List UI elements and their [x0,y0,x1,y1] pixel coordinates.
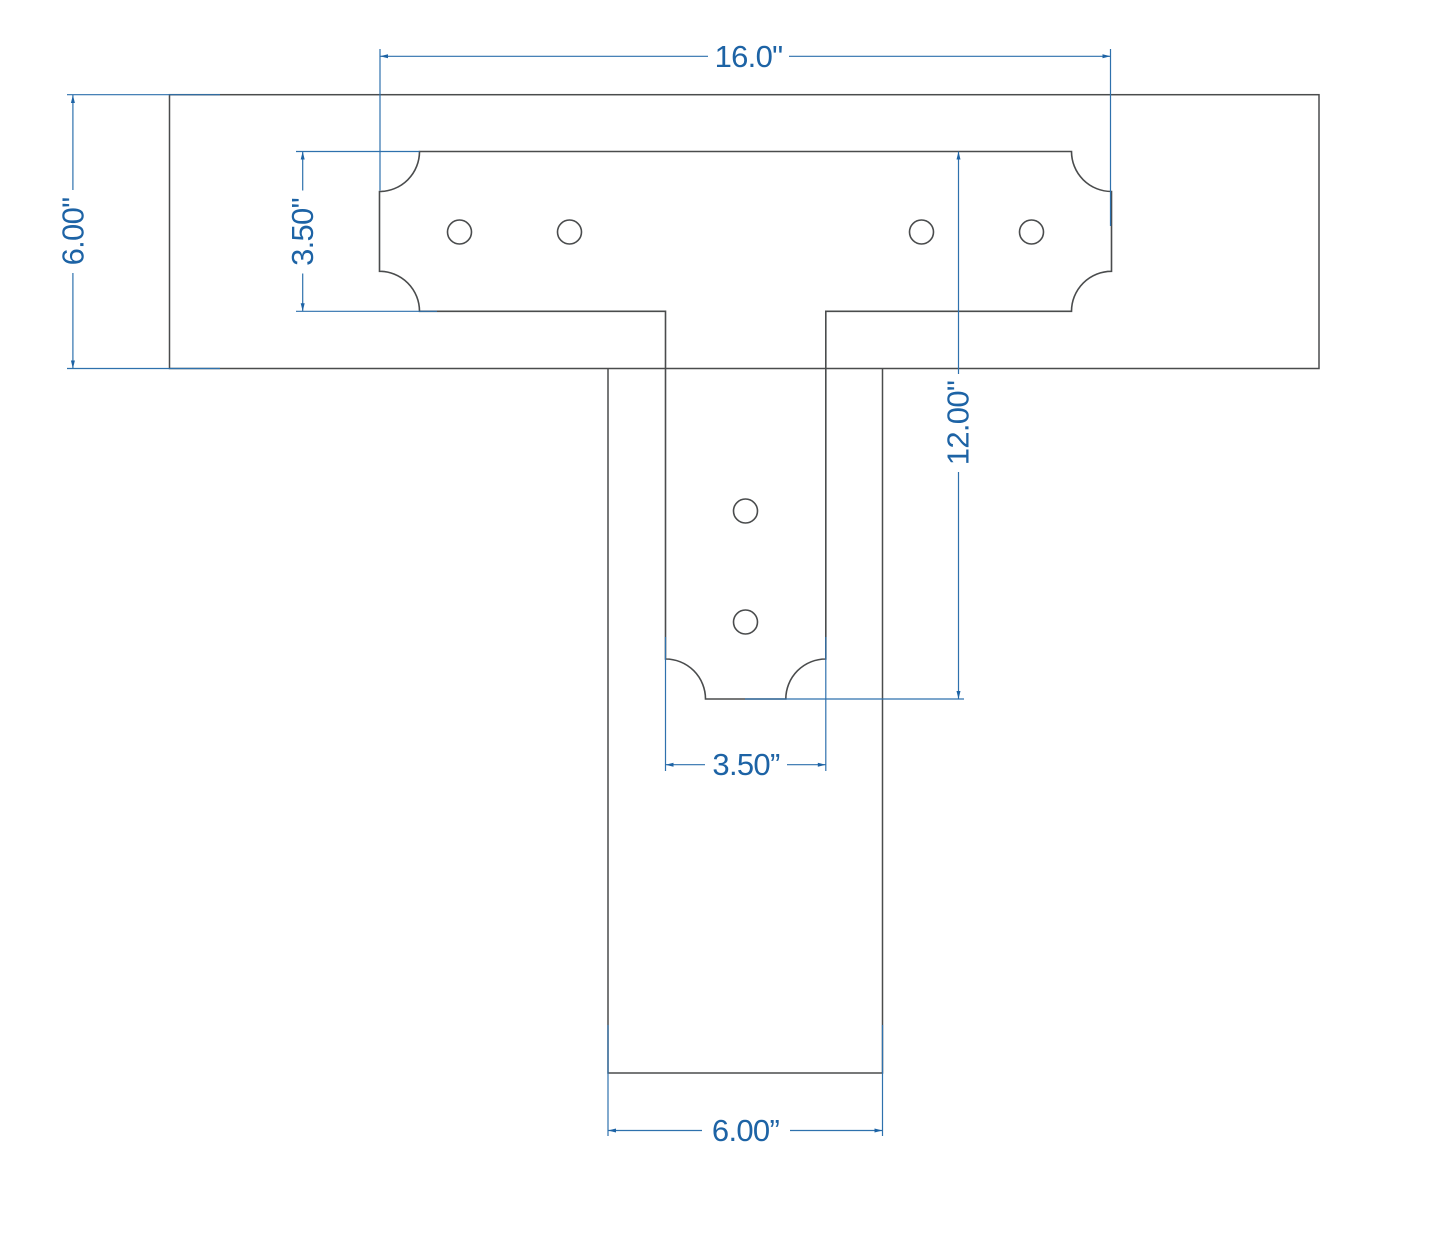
svg-text:3.50": 3.50" [285,198,320,266]
svg-text:16.0": 16.0" [715,39,783,74]
svg-text:6.00”: 6.00” [712,1113,780,1148]
svg-text:3.50”: 3.50” [712,747,780,782]
svg-text:12.00": 12.00" [941,381,976,465]
svg-text:6.00": 6.00" [55,198,90,266]
